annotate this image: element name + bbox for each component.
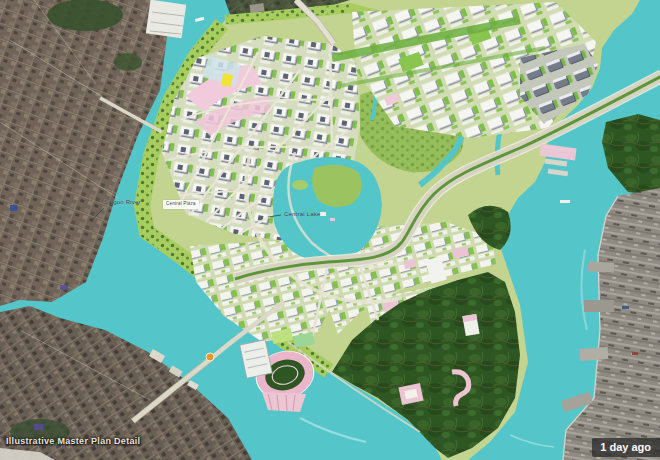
- master-plan-image: Saigon River Central Plaza Central Lake …: [0, 0, 660, 460]
- map-graphic: [0, 0, 660, 460]
- stadium-parking: [262, 392, 306, 412]
- bridge-landing-plaza: [206, 353, 214, 361]
